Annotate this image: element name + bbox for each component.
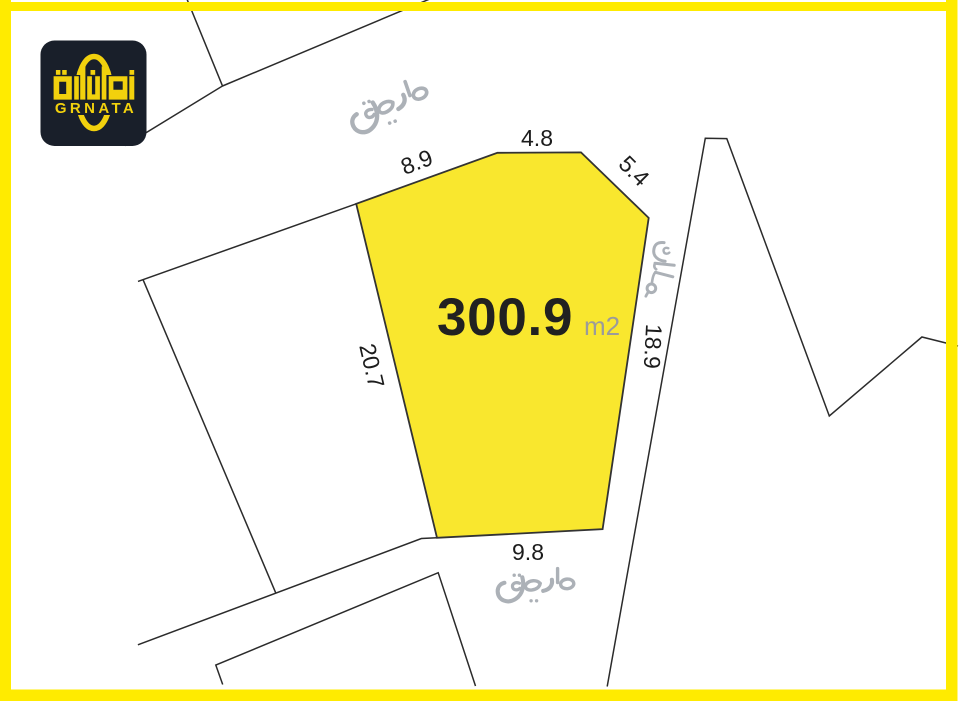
svg-text:9.8: 9.8	[512, 539, 544, 565]
svg-text:300.9: 300.9	[437, 288, 573, 347]
svg-text:18.9: 18.9	[639, 323, 667, 369]
svg-text:GRNATA: GRNATA	[55, 100, 137, 117]
svg-text:m2: m2	[584, 311, 620, 341]
svg-text:4.8: 4.8	[521, 125, 553, 151]
